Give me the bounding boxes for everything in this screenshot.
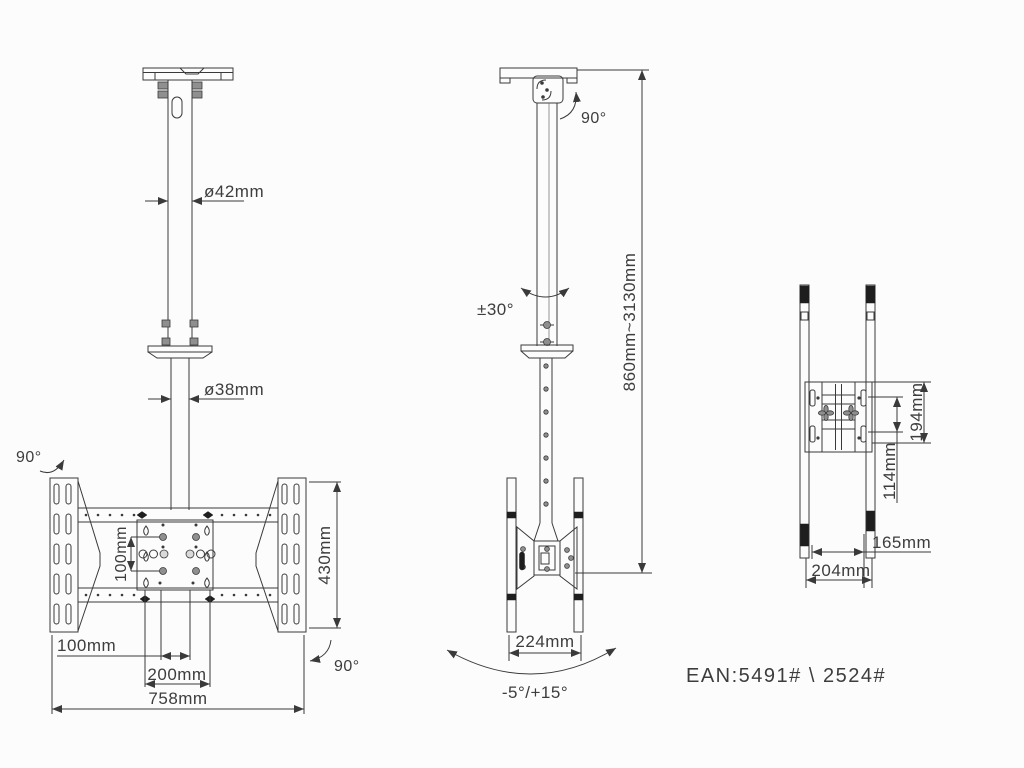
side-inner-tube <box>534 358 558 541</box>
ean-code-text: EAN:5491# \ 2524# <box>686 665 886 687</box>
rotate-arrow-top-left-icon <box>40 460 64 473</box>
front-vesa-plate <box>137 520 215 590</box>
dimension-labels: ø42mm ø38mm 90° 100mm 430mm 100mm 200mm … <box>16 110 931 708</box>
label-vesa-outer-spacing: 200mm <box>147 665 206 684</box>
rotate-arrow-bottom-right-icon <box>310 640 331 661</box>
label-tilt-range: -5°/+15° <box>502 683 568 702</box>
label-pole-rotation: ±30° <box>477 300 514 319</box>
side-collar <box>521 345 573 358</box>
front-arms <box>78 481 278 631</box>
tilt-arc-icon <box>447 648 616 674</box>
swivel-arrow-icon <box>560 92 576 119</box>
side-ceiling-plate <box>500 68 577 103</box>
side-rails <box>507 478 583 632</box>
label-vesa-vertical-spacing: 100mm <box>113 526 130 582</box>
side-hinge <box>517 527 577 589</box>
label-bracket-height-front: 430mm <box>315 525 334 584</box>
label-head-swivel-side: 90° <box>581 110 607 127</box>
front-upper-pole <box>162 80 198 346</box>
label-pole-upper-diameter: ø42mm <box>204 182 264 201</box>
label-hole-spacing-profile: 114mm <box>880 442 899 500</box>
side-upper-pole <box>537 103 557 346</box>
profile-rails <box>800 285 875 558</box>
label-bracket-height-profile: 194mm <box>907 382 926 441</box>
front-right-rail <box>278 478 306 632</box>
label-arm-width: 224mm <box>515 632 574 651</box>
label-swivel-top-front: 90° <box>16 449 42 466</box>
dim-100-vertical-lines <box>131 537 160 571</box>
drawing-page: ø42mm ø38mm 90° 100mm 430mm 100mm 200mm … <box>0 0 1024 768</box>
rotation-arc-icon <box>521 288 569 297</box>
dim-height-range-lines <box>575 70 652 573</box>
front-view <box>40 68 341 714</box>
front-collar <box>148 346 212 510</box>
front-ceiling-plate <box>143 68 233 98</box>
label-overall-width: 758mm <box>148 689 207 708</box>
label-height-range: 860mm~3130mm <box>620 253 639 392</box>
front-left-rail <box>50 478 78 632</box>
drawing-canvas: ø42mm ø38mm 90° 100mm 430mm 100mm 200mm … <box>0 0 1024 768</box>
label-vesa-inner-spacing: 100mm <box>57 636 116 655</box>
label-pole-lower-diameter: ø38mm <box>204 380 264 399</box>
label-inner-depth: 165mm <box>872 533 931 552</box>
label-swivel-bottom-front: 90° <box>334 658 360 675</box>
label-outer-depth: 204mm <box>811 561 870 580</box>
profile-bracket <box>805 382 872 452</box>
